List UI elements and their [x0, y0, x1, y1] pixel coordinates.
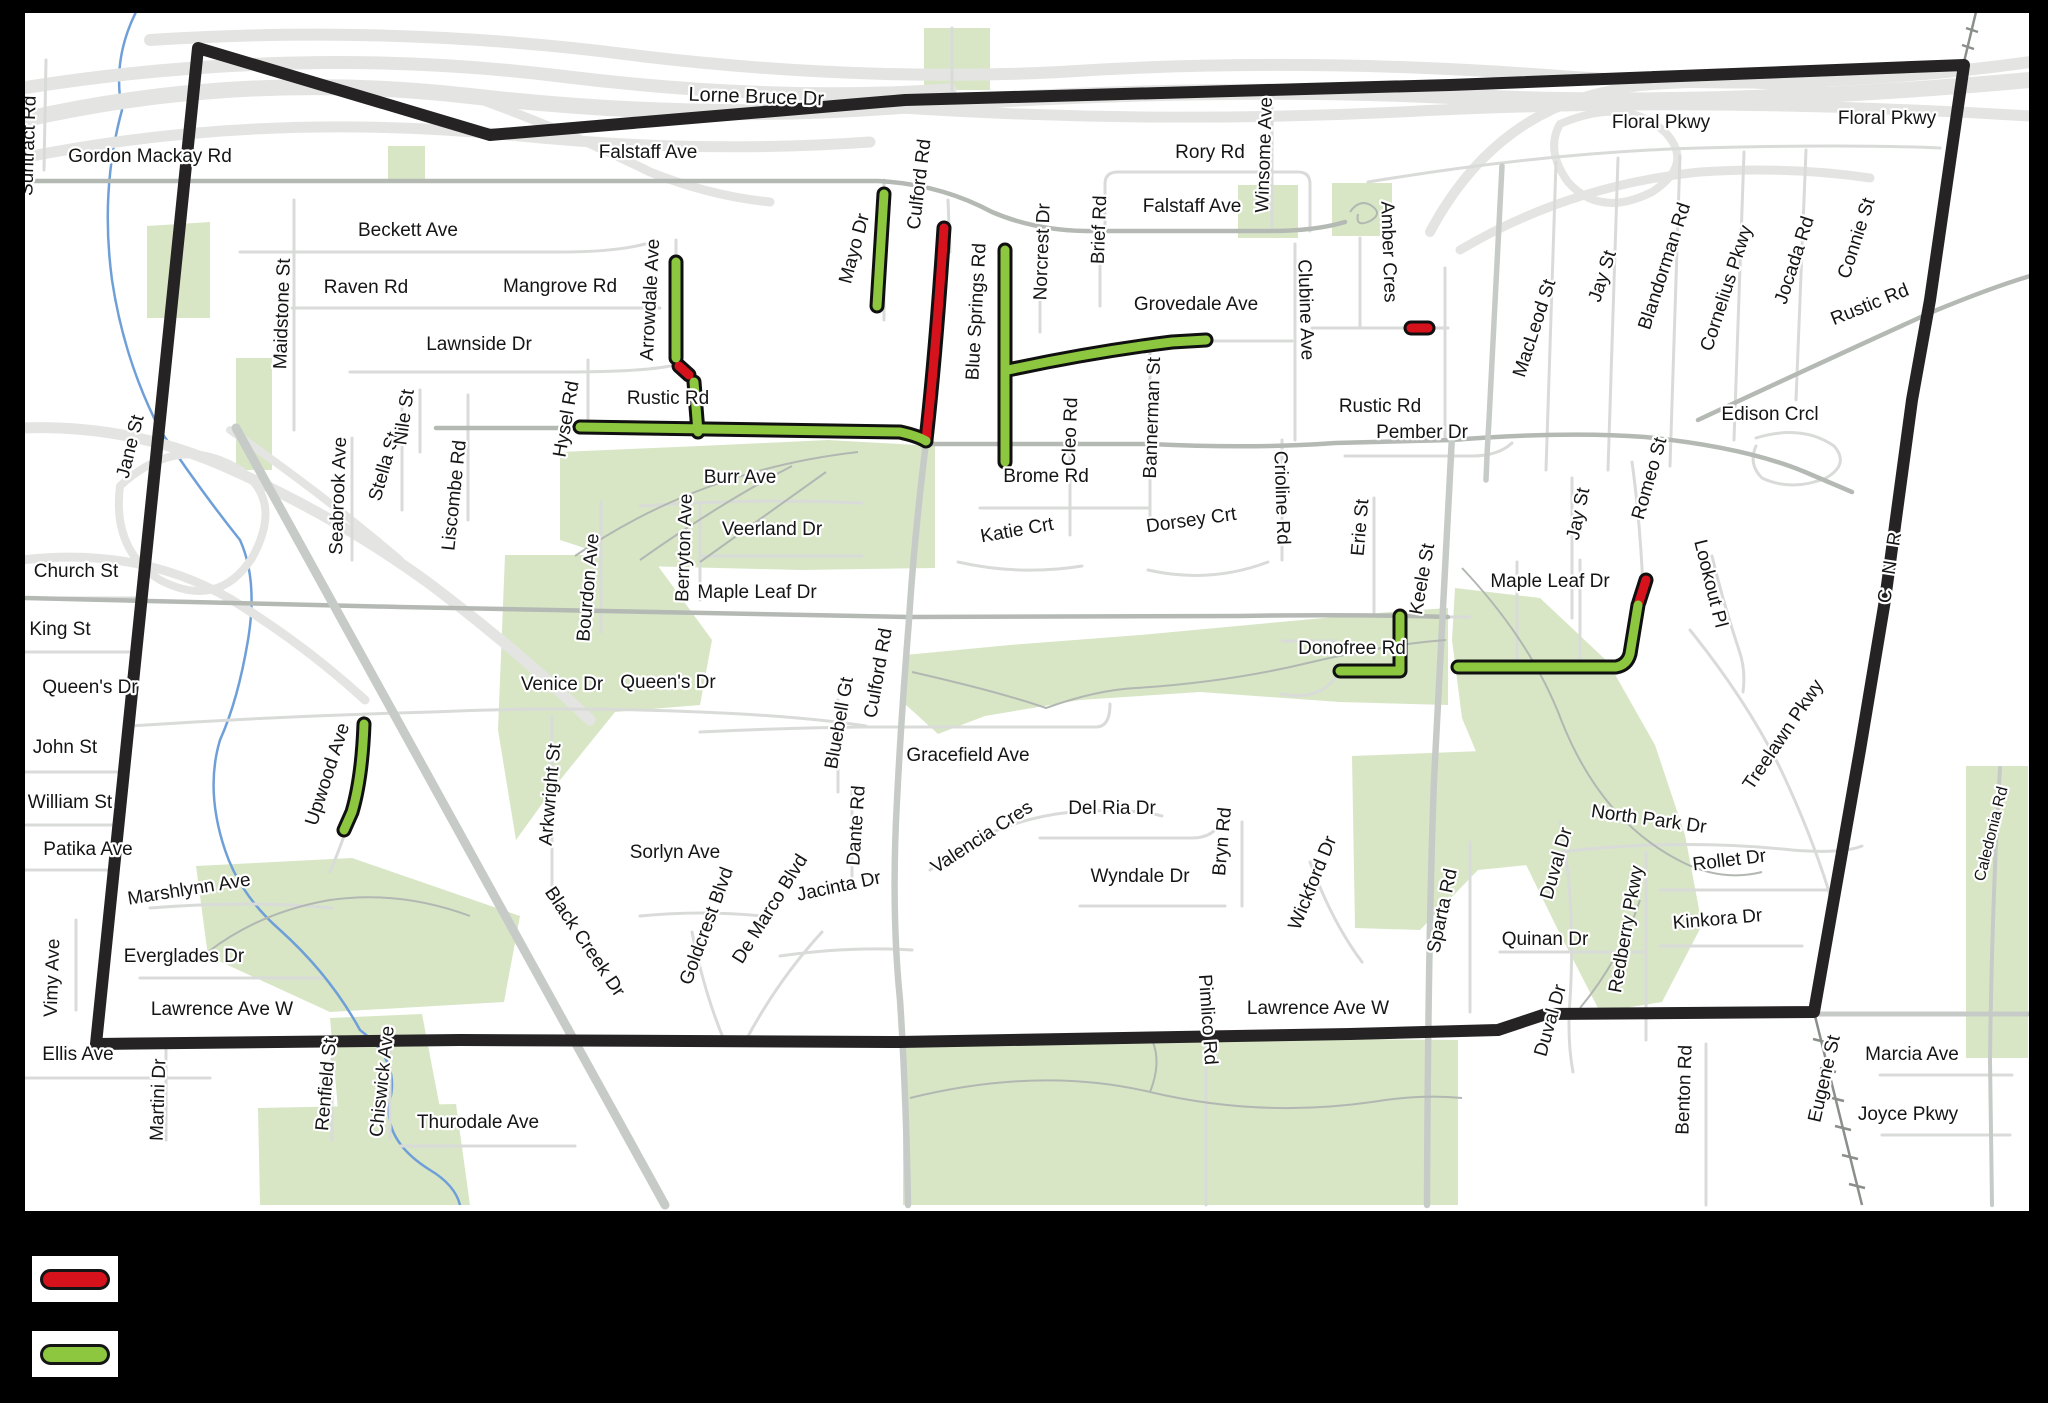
street-label: John St — [33, 737, 98, 758]
street-label: Maidstone St — [270, 257, 295, 369]
street-label: Ellis Ave — [42, 1044, 113, 1065]
street-label: Bannerman St — [1140, 356, 1165, 479]
street-label: Raven Rd — [324, 277, 409, 298]
street-label: Patika Ave — [43, 839, 132, 860]
street-label: Veerland Dr — [722, 519, 823, 540]
street-label: Floral Pkwy — [1838, 108, 1937, 129]
park-area — [560, 440, 935, 570]
street-label: Church St — [34, 561, 119, 582]
street-label: Grovedale Ave — [1134, 294, 1258, 315]
street-label: Donofree Rd — [1298, 638, 1406, 659]
street-label: Rustic Rd — [1339, 396, 1421, 417]
street-label: Marcia Ave — [1865, 1044, 1959, 1065]
street-label: Joyce Pkwy — [1858, 1104, 1959, 1125]
street-label: Seabrook Ave — [326, 436, 351, 555]
map-area — [22, 10, 2032, 1214]
map-canvas: Suntract RdGordon Mackay RdFalstaff AveL… — [0, 0, 2048, 1403]
street-label: Cleo Rd — [1059, 397, 1082, 466]
street-label: Maple Leaf Dr — [697, 582, 817, 603]
street-label: Vimy Ave — [41, 938, 65, 1017]
street-label: Edison Crcl — [1721, 404, 1818, 425]
street-label: Mangrove Rd — [503, 276, 617, 297]
road-restriction-map-page: Suntract RdGordon Mackay RdFalstaff AveL… — [0, 0, 2048, 1403]
street-label: Burr Ave — [704, 467, 777, 488]
street-label: Wyndale Dr — [1090, 866, 1190, 887]
local-road — [44, 60, 46, 170]
street-label: Winsome Ave — [1252, 97, 1277, 213]
street-label: Sorlyn Ave — [630, 842, 720, 863]
street-label: Brome Rd — [1003, 466, 1089, 487]
street-label: Lawnside Dr — [426, 334, 532, 355]
street-label: Falstaff Ave — [1143, 196, 1242, 217]
street-label: Crioline Rd — [1269, 450, 1293, 545]
park-area — [903, 1038, 1458, 1205]
street-label: Clubine Ave — [1293, 259, 1318, 361]
street-label: Floral Pkwy — [1612, 112, 1711, 133]
street-label: Rustic Rd — [627, 388, 709, 409]
street-label: Lawrence Ave W — [1247, 998, 1389, 1019]
street-label: Maple Leaf Dr — [1490, 571, 1610, 592]
street-label: Amber Cres — [1376, 201, 1401, 303]
street-label: Thurodale Ave — [417, 1112, 539, 1133]
street-label: Gordon Mackay Rd — [68, 146, 232, 167]
street-label: Queen's Dr — [42, 677, 138, 698]
street-label: Queen's Dr — [620, 672, 716, 693]
street-label: King St — [29, 619, 91, 640]
park-area — [388, 146, 425, 180]
street-label: Berryton Ave — [672, 493, 697, 602]
street-label: Del Ria Dr — [1068, 798, 1156, 819]
street-label: Venice Dr — [521, 674, 604, 695]
street-label: Everglades Dr — [124, 946, 245, 967]
street-label: Pember Dr — [1376, 422, 1469, 443]
street-label: Falstaff Ave — [599, 142, 698, 163]
street-label: Brief Rd — [1088, 195, 1111, 264]
street-label: William St — [28, 792, 113, 813]
street-label: Lawrence Ave W — [151, 999, 293, 1020]
street-label: Quinan Dr — [1502, 929, 1589, 950]
street-label: Beckett Ave — [358, 220, 458, 241]
street-label: Norcrest Dr — [1030, 202, 1054, 300]
street-label: Rory Rd — [1175, 142, 1245, 163]
street-label: Gracefield Ave — [906, 745, 1029, 766]
street-label: Benton Rd — [1672, 1045, 1696, 1135]
street-label: Martini Dr — [147, 1058, 171, 1142]
